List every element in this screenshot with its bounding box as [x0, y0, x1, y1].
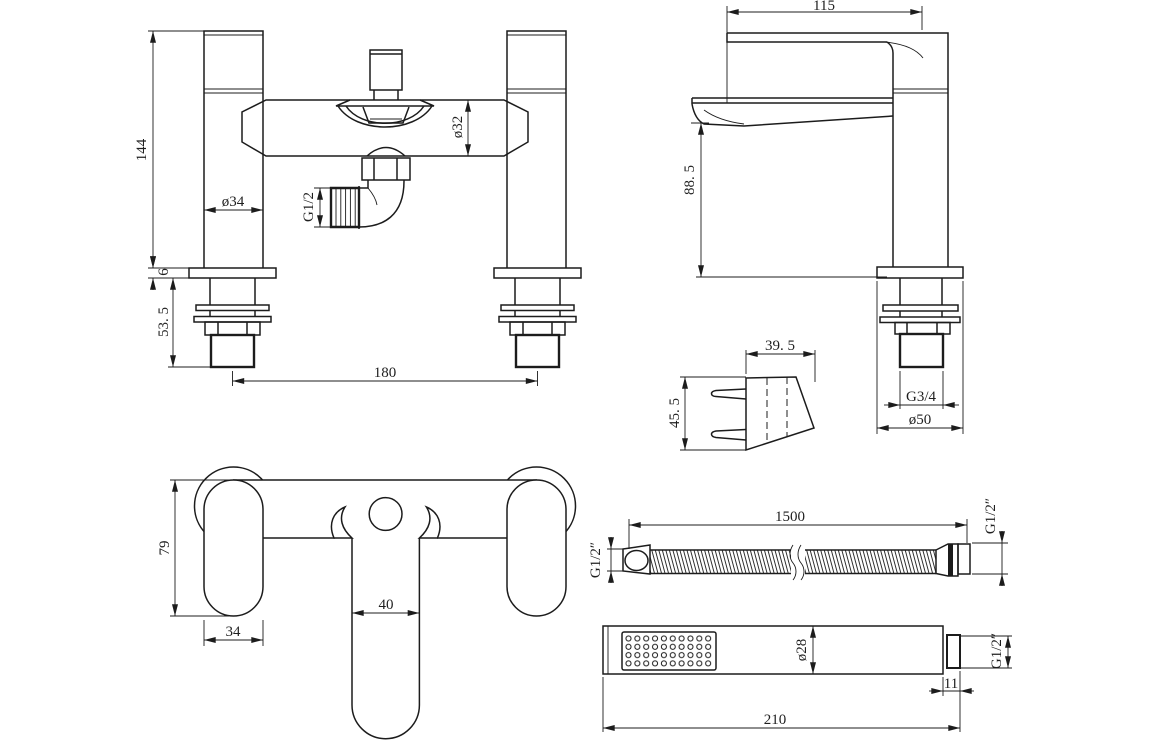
side-body-seams — [893, 89, 948, 93]
diverter-knob — [370, 50, 402, 100]
dim-side-reach-label: 115 — [813, 0, 835, 14]
technical-drawing-page: 144 ø34 G1/2 ø32 6 53. 5 180 — [0, 0, 1156, 742]
dim-front-deck-thickness-label: 6 — [156, 268, 172, 276]
dim-top-spout-label: 40 — [379, 597, 394, 613]
dim-handset-length-label: 210 — [764, 712, 787, 728]
right-deck-flange — [494, 268, 581, 278]
dim-front-outlet-thread-label: G1/2 — [301, 192, 317, 222]
handset-view: ø28 11 210 G1/2″ — [603, 626, 1012, 732]
dim-handset-nipple-label: 11 — [944, 676, 958, 692]
right-shank — [499, 278, 576, 367]
drawing-svg: 144 ø34 G1/2 ø32 6 53. 5 180 — [0, 0, 1156, 742]
side-view: 115 88. 5 G3/4 ø50 — [682, 0, 963, 434]
right-pillar-seams — [507, 35, 566, 93]
outlet-hex-nut — [362, 158, 410, 180]
hose-break-lines — [790, 545, 804, 580]
side-dimensions: 115 88. 5 G3/4 ø50 — [682, 0, 963, 434]
left-shank — [194, 278, 271, 367]
dim-hose-length-label: 1500 — [775, 509, 805, 525]
dim-front-shank-length-label: 53. 5 — [156, 307, 172, 337]
outlet-elbow — [359, 180, 404, 229]
dim-hose-thread-right-label: G1/2″ — [983, 498, 999, 534]
hose-end-nut — [958, 544, 970, 574]
left-handle-top — [204, 480, 263, 616]
handset-connector — [947, 635, 960, 668]
bracket-dimensions: 39. 5 45. 5 — [667, 338, 815, 450]
outlet-dome — [367, 148, 405, 157]
hose-nut-face — [625, 551, 648, 571]
dim-side-thread-label: G3/4 — [906, 389, 937, 405]
dim-side-flange-label: ø50 — [909, 412, 932, 428]
hose-conical-nut — [623, 545, 650, 574]
side-spout-blade — [692, 98, 893, 104]
side-spout-underside — [692, 104, 893, 126]
hose-corrugation-left — [650, 550, 791, 574]
waterfall-spout-inner — [346, 106, 424, 123]
dim-handset-thread-label: G1/2″ — [989, 633, 1005, 669]
hose-view: 1500 G1/2″ G1/2″ — [588, 498, 1008, 586]
hose-corrugation-right — [805, 550, 936, 574]
dim-top-depth-label: 79 — [157, 541, 173, 556]
dim-front-centres-label: 180 — [374, 365, 397, 381]
bracket-hidden-lines — [767, 377, 787, 443]
bracket-body — [746, 377, 814, 450]
front-view: 144 ø34 G1/2 ø32 6 53. 5 180 — [134, 31, 581, 386]
top-view: 79 34 40 — [157, 467, 576, 739]
dim-hose-thread-left-label: G1/2″ — [588, 542, 604, 578]
bracket-lower-prong — [712, 430, 747, 441]
side-shank — [880, 278, 960, 367]
side-body-outline — [727, 33, 948, 267]
dim-handset-dia-label: ø28 — [794, 639, 810, 662]
body-strip-mask — [233, 480, 537, 538]
dim-front-pillar-dia-label: ø34 — [222, 194, 245, 210]
bracket-upper-prong — [712, 389, 747, 399]
dim-bracket-width-label: 39. 5 — [765, 338, 795, 354]
bracket-view: 39. 5 45. 5 — [667, 338, 815, 450]
left-deck-flange — [189, 268, 276, 278]
outlet-elbow-fillet — [368, 188, 377, 205]
dim-bracket-height-label: 45. 5 — [667, 398, 683, 428]
side-deck-flange — [877, 267, 963, 278]
side-spout-detail — [704, 110, 744, 124]
handset-spray-holes — [624, 634, 712, 668]
right-handle-top — [507, 480, 566, 616]
dim-side-height-label: 88. 5 — [682, 165, 698, 195]
hose-ferrule — [936, 544, 958, 576]
dim-front-height-label: 144 — [134, 138, 150, 161]
spout-top-outline — [352, 538, 419, 739]
outlet-thread-lines — [336, 189, 355, 226]
hose-ferrule-band — [948, 544, 953, 576]
dim-top-handle-label: 34 — [226, 624, 242, 640]
diverter-escutcheon — [336, 100, 434, 106]
dim-front-body-dia-label: ø32 — [450, 116, 466, 139]
left-pillar-seams — [204, 35, 263, 93]
